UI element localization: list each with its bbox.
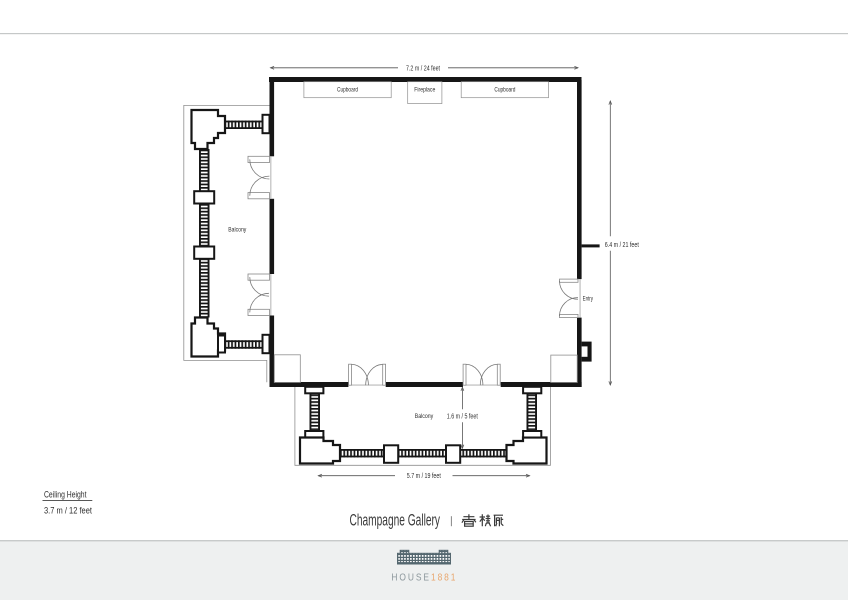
svg-text:Balcony: Balcony (415, 413, 434, 420)
svg-text:1.6 m / 5 feet: 1.6 m / 5 feet (447, 413, 478, 420)
svg-text:3.7 m / 12 feet: 3.7 m / 12 feet (44, 505, 92, 515)
svg-text:Champagne Gallery: Champagne Gallery (350, 512, 441, 530)
svg-text:Cupboard: Cupboard (494, 87, 515, 94)
svg-text:Fireplace: Fireplace (414, 87, 435, 94)
svg-text:5.7 m / 19 feet: 5.7 m / 19 feet (407, 473, 441, 480)
svg-text:Balcony: Balcony (228, 227, 247, 234)
svg-text:Cupboard: Cupboard (337, 87, 358, 94)
svg-text:7.2 m / 24 feet: 7.2 m / 24 feet (406, 65, 440, 72)
svg-text:6.4 m / 21 feet: 6.4 m / 21 feet (605, 242, 639, 249)
svg-text:HOUSE1881: HOUSE1881 (391, 572, 457, 583)
svg-text:Entry: Entry (583, 296, 593, 302)
svg-text:Ceiling Height: Ceiling Height (44, 489, 87, 499)
